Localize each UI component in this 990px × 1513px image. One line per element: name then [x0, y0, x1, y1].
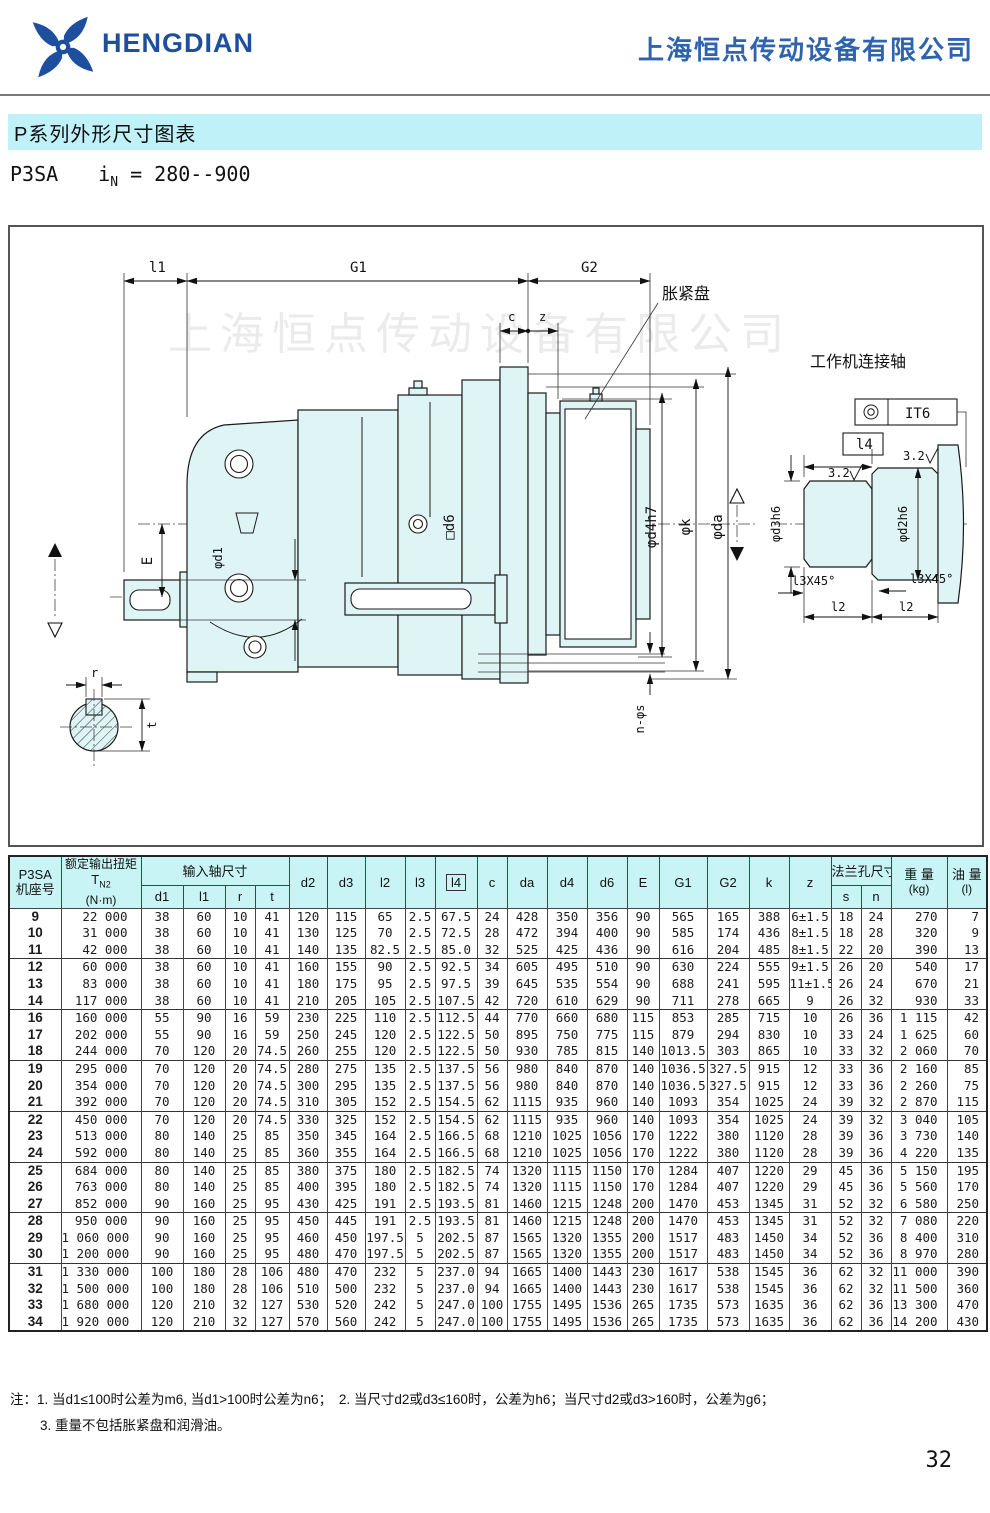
table-cell: 9±1.5 — [789, 959, 831, 976]
table-cell: 25 — [225, 1179, 255, 1196]
table-cell: 10 — [225, 942, 255, 959]
table-cell: 436 — [749, 925, 789, 942]
table-cell: 182.5 — [435, 1179, 477, 1196]
table-cell: 450 000 — [61, 1111, 141, 1128]
table-cell: 1470 — [659, 1213, 707, 1230]
table-cell: 1443 — [587, 1281, 627, 1298]
table-cell: 300 — [289, 1078, 327, 1095]
table-cell: 247.0 — [435, 1297, 477, 1314]
table-cell: 191 — [365, 1213, 405, 1230]
table-cell: 127 — [255, 1314, 289, 1332]
page: HENGDIAN 上海恒点传动设备有限公司 P系列外形尺寸图表 P3SAiN =… — [0, 0, 990, 1513]
table-cell: 13 — [9, 976, 61, 993]
table-cell: 62 — [477, 1111, 507, 1128]
table-cell: 27 — [9, 1196, 61, 1213]
table-cell: 36 — [861, 1297, 891, 1314]
table-cell: 18 — [9, 1043, 61, 1060]
table-cell: 1 200 000 — [61, 1246, 141, 1263]
table-cell: 19 — [9, 1060, 61, 1077]
table-cell: 5 — [405, 1230, 435, 1247]
table-cell: 3 040 — [891, 1111, 947, 1128]
table-cell: 29 — [9, 1230, 61, 1247]
table-cell: 62 — [831, 1281, 861, 1298]
table-cell: 24 — [861, 1027, 891, 1044]
dim-l1: l1 — [149, 260, 166, 276]
table-cell: 5 — [405, 1314, 435, 1332]
table-cell: 930 — [891, 993, 947, 1010]
table-cell: 630 — [659, 959, 707, 976]
table-cell: 1093 — [659, 1094, 707, 1111]
table-cell: 2.5 — [405, 1043, 435, 1060]
table-cell: 29 — [789, 1162, 831, 1179]
dim-l2-left: l2 — [831, 600, 845, 614]
table-cell: 25 — [225, 1196, 255, 1213]
table-cell: 510 — [289, 1281, 327, 1298]
table-row: 25684 0008014025853803751802.5182.574132… — [9, 1162, 987, 1179]
table-cell: 24 — [861, 908, 891, 925]
model-code: P3SA — [10, 162, 58, 186]
dim-E: E — [140, 557, 156, 565]
table-cell: 2.5 — [405, 925, 435, 942]
table-cell: 39 — [831, 1145, 861, 1162]
table-cell: 90 — [627, 908, 659, 925]
table-cell: 122.5 — [435, 1027, 477, 1044]
table-cell: 250 — [947, 1196, 987, 1213]
table-cell: 16 — [225, 1010, 255, 1027]
table-cell: 34 — [9, 1314, 61, 1332]
table-cell: 152 — [365, 1094, 405, 1111]
table-cell: 5 560 — [891, 1179, 947, 1196]
table-cell: 38 — [141, 925, 183, 942]
table-cell: 538 — [707, 1264, 749, 1281]
table-cell: 407 — [707, 1162, 749, 1179]
table-cell: 100 — [141, 1281, 183, 1298]
table-cell: 380 — [707, 1145, 749, 1162]
header-d3: d3 — [327, 856, 365, 908]
table-cell: 202.5 — [435, 1230, 477, 1247]
table-cell: 2.5 — [405, 908, 435, 925]
table-cell: 555 — [749, 959, 789, 976]
table-cell: 200 — [627, 1230, 659, 1247]
table-cell: 483 — [707, 1246, 749, 1263]
table-cell: 25 — [225, 1213, 255, 1230]
table-header: P3SA 机座号 额定输出扭矩 TN2 (N·m) 输入轴尺寸 d2 d3 l2… — [9, 856, 987, 908]
table-cell: 327.5 — [707, 1078, 749, 1095]
label-it6: IT6 — [905, 406, 930, 422]
table-cell: 166.5 — [435, 1128, 477, 1145]
table-cell: 82.5 — [365, 942, 405, 959]
table-cell: 5 — [405, 1264, 435, 1281]
table-cell: 1495 — [547, 1297, 587, 1314]
table-cell: 31 000 — [61, 925, 141, 942]
table-cell: 354 — [707, 1094, 749, 1111]
table-cell: 85 — [255, 1128, 289, 1145]
table-cell: 34 — [789, 1246, 831, 1263]
table-cell: 164 — [365, 1128, 405, 1145]
table-cell: 1320 — [507, 1179, 547, 1196]
table-cell: 1025 — [547, 1145, 587, 1162]
table-cell: 356 — [587, 908, 627, 925]
table-cell: 68 — [477, 1145, 507, 1162]
table-cell: 38 — [141, 942, 183, 959]
table-cell: 70 — [141, 1078, 183, 1095]
table-cell: 174 — [707, 925, 749, 942]
table-cell: 879 — [659, 1027, 707, 1044]
table-cell: 170 — [947, 1179, 987, 1196]
table-cell: 10 — [789, 1027, 831, 1044]
table-cell: 1 500 000 — [61, 1281, 141, 1298]
table-cell: 1545 — [749, 1264, 789, 1281]
table-cell: 436 — [587, 942, 627, 959]
table-cell: 1025 — [749, 1094, 789, 1111]
table-cell: 935 — [547, 1094, 587, 1111]
table-cell: 453 — [707, 1196, 749, 1213]
table-cell: 1536 — [587, 1297, 627, 1314]
header-z: z — [789, 856, 831, 908]
table-cell: 16 — [9, 1010, 61, 1027]
table-cell: 2.5 — [405, 942, 435, 959]
table-cell: 1735 — [659, 1297, 707, 1314]
table-cell: 275 — [327, 1060, 365, 1077]
hengdian-logo-icon — [30, 10, 96, 84]
table-cell: 95 — [255, 1196, 289, 1213]
table-cell: 2 870 — [891, 1094, 947, 1111]
table-cell: 70 — [947, 1043, 987, 1060]
table-cell: 80 — [141, 1128, 183, 1145]
table-cell: 85 — [255, 1179, 289, 1196]
table-cell: 12 — [789, 1060, 831, 1077]
table-cell: 11 000 — [891, 1264, 947, 1281]
table-cell: 21 — [9, 1094, 61, 1111]
table-cell: 224 — [707, 959, 749, 976]
header-G1: G1 — [659, 856, 707, 908]
table-cell: 210 — [289, 993, 327, 1010]
table-row: 321 500 000100180281065105002325237.0941… — [9, 1281, 987, 1298]
table-cell: 22 000 — [61, 908, 141, 925]
table-cell: 26 — [9, 1179, 61, 1196]
table-cell: 495 — [547, 959, 587, 976]
table-cell: 36 — [789, 1281, 831, 1298]
table-cell: 20 — [861, 942, 891, 959]
table-cell: 24 — [789, 1094, 831, 1111]
table-cell: 485 — [749, 942, 789, 959]
note-label: 注： — [10, 1392, 37, 1407]
table-cell: 28 — [861, 925, 891, 942]
table-cell: 20 — [225, 1043, 255, 1060]
header-s: s — [831, 885, 861, 908]
table-row: 20354 000701202074.53002951352.5137.5569… — [9, 1078, 987, 1095]
table-cell: 13 — [947, 942, 987, 959]
table-cell: 60 — [183, 993, 225, 1010]
table-cell: 59 — [255, 1027, 289, 1044]
table-cell: 5 — [405, 1246, 435, 1263]
table-cell: 18 — [831, 925, 861, 942]
table-cell: 140 — [947, 1128, 987, 1145]
table-cell: 237.0 — [435, 1264, 477, 1281]
table-cell: 325 — [327, 1111, 365, 1128]
table-cell: 13 300 — [891, 1297, 947, 1314]
table-cell: 70 — [141, 1043, 183, 1060]
table-cell: 560 — [327, 1314, 365, 1332]
table-cell: 25 — [9, 1162, 61, 1179]
table-cell: 1013.5 — [659, 1043, 707, 1060]
table-cell: 22 — [831, 942, 861, 959]
dim-G2: G2 — [581, 260, 598, 276]
table-cell: 170 — [627, 1128, 659, 1145]
table-cell: 1345 — [749, 1213, 789, 1230]
table-cell: 33 — [947, 993, 987, 1010]
table-cell: 1735 — [659, 1314, 707, 1332]
dim-d4h7: φd4h7 — [644, 506, 660, 548]
chamfer-right: l3X45° — [910, 572, 953, 586]
table-cell: 5 150 — [891, 1162, 947, 1179]
table-cell: 265 — [627, 1314, 659, 1332]
table-cell: 180 — [365, 1162, 405, 1179]
table-cell: 394 — [547, 925, 587, 942]
table-cell: 120 — [183, 1094, 225, 1111]
table-cell: 204 — [707, 942, 749, 959]
table-cell: 32 — [861, 1264, 891, 1281]
header-r: r — [225, 885, 255, 908]
table-cell: 90 — [365, 959, 405, 976]
header-G2: G2 — [707, 856, 749, 908]
table-cell: 852 000 — [61, 1196, 141, 1213]
table-cell: 230 — [627, 1281, 659, 1298]
table-cell: 32 — [861, 1111, 891, 1128]
table-cell: 170 — [627, 1162, 659, 1179]
table-cell: 1222 — [659, 1145, 707, 1162]
table-cell: 2.5 — [405, 1094, 435, 1111]
table-cell: 60 — [183, 908, 225, 925]
table-cell: 25 — [225, 1230, 255, 1247]
table-cell: 2.5 — [405, 1027, 435, 1044]
table-cell: 31 — [9, 1264, 61, 1281]
table-cell: 450 — [289, 1213, 327, 1230]
table-cell: 320 — [891, 925, 947, 942]
table-cell: 155 — [327, 959, 365, 976]
table-cell: 25 — [225, 1128, 255, 1145]
table-cell: 629 — [587, 993, 627, 1010]
table-cell: 1025 — [749, 1111, 789, 1128]
table-cell: 120 — [141, 1314, 183, 1332]
table-cell: 2 060 — [891, 1043, 947, 1060]
table-cell: 20 — [225, 1111, 255, 1128]
table-cell: 74.5 — [255, 1078, 289, 1095]
table-cell: 775 — [587, 1027, 627, 1044]
table-cell: 870 — [587, 1060, 627, 1077]
table-cell: 52 — [831, 1230, 861, 1247]
table-cell: 684 000 — [61, 1162, 141, 1179]
table-cell: 232 — [365, 1281, 405, 1298]
table-cell: 390 — [891, 942, 947, 959]
table-cell: 28 — [477, 925, 507, 942]
table-cell: 193.5 — [435, 1196, 477, 1213]
table-cell: 140 — [183, 1162, 225, 1179]
dim-d1: φd1 — [211, 547, 225, 569]
table-row: 16160 000559016592302251102.5112.5447706… — [9, 1010, 987, 1027]
table-cell: 470 — [327, 1264, 365, 1281]
table-cell: 105 — [947, 1111, 987, 1128]
table-cell: 39 — [831, 1111, 861, 1128]
table-cell: 360 — [289, 1145, 327, 1162]
table-cell: 573 — [707, 1297, 749, 1314]
table-cell: 1400 — [547, 1281, 587, 1298]
table-cell: 60 — [183, 959, 225, 976]
table-cell: 52 — [831, 1246, 861, 1263]
table-cell: 205 — [327, 993, 365, 1010]
table-cell: 1036.5 — [659, 1078, 707, 1095]
table-row: 14117 000386010412102051052.5107.5427206… — [9, 993, 987, 1010]
table-cell: 605 — [507, 959, 547, 976]
table-cell: 1617 — [659, 1281, 707, 1298]
table-cell: 33 — [9, 1297, 61, 1314]
table-cell: 165 — [707, 908, 749, 925]
table-cell: 83 000 — [61, 976, 141, 993]
table-cell: 10 — [225, 959, 255, 976]
table-cell: 36 — [861, 1314, 891, 1332]
table-cell: 1115 — [507, 1111, 547, 1128]
table-cell: 32 — [861, 1281, 891, 1298]
table-cell: 60 — [947, 1027, 987, 1044]
table-cell: 74.5 — [255, 1043, 289, 1060]
table-cell: 1565 — [507, 1246, 547, 1263]
table-row: 28950 0009016025954504451912.5193.581146… — [9, 1213, 987, 1230]
table-cell: 60 — [183, 942, 225, 959]
table-cell: 2.5 — [405, 976, 435, 993]
table-cell: 295 000 — [61, 1060, 141, 1077]
table-cell: 42 000 — [61, 942, 141, 959]
table-cell: 140 — [627, 1094, 659, 1111]
table-cell: 2.5 — [405, 1213, 435, 1230]
table-cell: 38 — [141, 993, 183, 1010]
table-cell: 85.0 — [435, 942, 477, 959]
table-cell: 25 — [225, 1246, 255, 1263]
table-cell: 554 — [587, 976, 627, 993]
table-cell: 763 000 — [61, 1179, 141, 1196]
chamfer-left: l3X45° — [792, 574, 835, 588]
table-cell: 90 — [183, 1027, 225, 1044]
table-cell: 197.5 — [365, 1230, 405, 1247]
table-cell: 895 — [507, 1027, 547, 1044]
table-cell: 453 — [707, 1213, 749, 1230]
table-cell: 1115 — [507, 1094, 547, 1111]
table-row: 1383 00038601041180175952.597.5396455355… — [9, 976, 987, 993]
table-cell: 70 — [141, 1094, 183, 1111]
table-cell: 160 000 — [61, 1010, 141, 1027]
table-cell: 345 — [327, 1128, 365, 1145]
table-cell: 90 — [141, 1213, 183, 1230]
table-cell: 90 — [141, 1230, 183, 1247]
table-cell: 24 — [861, 976, 891, 993]
table-cell: 81 — [477, 1196, 507, 1213]
table-cell: 75 — [947, 1078, 987, 1095]
table-row: 922 00038601041120115652.567.52442835035… — [9, 908, 987, 925]
table-cell: 480 — [289, 1264, 327, 1281]
table-cell: 36 — [861, 1179, 891, 1196]
table-cell: 1 680 000 — [61, 1297, 141, 1314]
table-cell: 530 — [289, 1297, 327, 1314]
table-cell: 865 — [749, 1043, 789, 1060]
table-cell: 70 — [141, 1060, 183, 1077]
table-cell: 11±1.5 — [789, 976, 831, 993]
table-cell: 255 — [327, 1043, 365, 1060]
table-cell: 1400 — [547, 1264, 587, 1281]
table-cell: 20 — [861, 959, 891, 976]
table-cell: 1495 — [547, 1314, 587, 1332]
table-cell: 1450 — [749, 1230, 789, 1247]
table-row: 291 060 000901602595460450197.55202.5871… — [9, 1230, 987, 1247]
footnotes: 注：1. 当d1≤100时公差为m6, 当d1>100时公差为n6； 2. 当尺… — [10, 1388, 774, 1434]
table-cell: 14 — [9, 993, 61, 1010]
table-cell: 34 — [477, 959, 507, 976]
table-cell: 350 — [289, 1128, 327, 1145]
force-arrow-up-icon — [48, 543, 62, 557]
table-row: 17202 000559016592502451202.5122.5508957… — [9, 1027, 987, 1044]
table-cell: 22 — [9, 1111, 61, 1128]
section-title: P系列外形尺寸图表 — [14, 118, 196, 147]
dim-d3h6: φd3h6 — [769, 506, 783, 542]
table-cell: 1025 — [547, 1128, 587, 1145]
table-cell: 122.5 — [435, 1043, 477, 1060]
table-cell: 41 — [255, 976, 289, 993]
table-cell: 2.5 — [405, 959, 435, 976]
header-E: E — [627, 856, 659, 908]
table-cell: 94 — [477, 1264, 507, 1281]
dim-ns: n-φs — [633, 705, 647, 734]
table-cell: 1635 — [749, 1314, 789, 1332]
table-cell: 595 — [749, 976, 789, 993]
table-cell: 20 — [225, 1094, 255, 1111]
table-cell: 95 — [255, 1213, 289, 1230]
table-cell: 750 — [547, 1027, 587, 1044]
table-cell: 1 625 — [891, 1027, 947, 1044]
table-cell: 460 — [289, 1230, 327, 1247]
table-cell: 4 220 — [891, 1145, 947, 1162]
table-cell: 100 — [141, 1264, 183, 1281]
table-cell: 950 000 — [61, 1213, 141, 1230]
table-cell: 32 — [861, 1213, 891, 1230]
table-cell: 24 — [789, 1111, 831, 1128]
table-cell: 39 — [831, 1128, 861, 1145]
force-arrow-up2-icon — [730, 489, 744, 503]
table-cell: 350 — [547, 908, 587, 925]
table-cell: 135 — [365, 1078, 405, 1095]
table-row: 27852 0009016025954304251912.5193.581146… — [9, 1196, 987, 1213]
table-cell: 25 — [225, 1145, 255, 1162]
table-cell: 870 — [587, 1078, 627, 1095]
table-cell: 1345 — [749, 1196, 789, 1213]
table-cell: 8±1.5 — [789, 942, 831, 959]
table-cell: 303 — [707, 1043, 749, 1060]
table-cell: 1210 — [507, 1128, 547, 1145]
table-cell: 785 — [547, 1043, 587, 1060]
table-cell: 62 — [477, 1094, 507, 1111]
table-cell: 85 — [947, 1060, 987, 1077]
table-cell: 10 — [225, 925, 255, 942]
table-cell: 52 — [831, 1196, 861, 1213]
table-cell: 232 — [365, 1264, 405, 1281]
table-cell: 310 — [947, 1230, 987, 1247]
table-cell: 8±1.5 — [789, 925, 831, 942]
table-cell: 120 — [289, 908, 327, 925]
roughness-left: 3.2 — [828, 466, 850, 480]
table-cell: 28 — [225, 1264, 255, 1281]
table-cell: 9 — [9, 908, 61, 925]
table-cell: 5 — [405, 1281, 435, 1298]
table-cell: 425 — [547, 942, 587, 959]
table-cell: 125 — [327, 925, 365, 942]
table-cell: 38 — [141, 908, 183, 925]
